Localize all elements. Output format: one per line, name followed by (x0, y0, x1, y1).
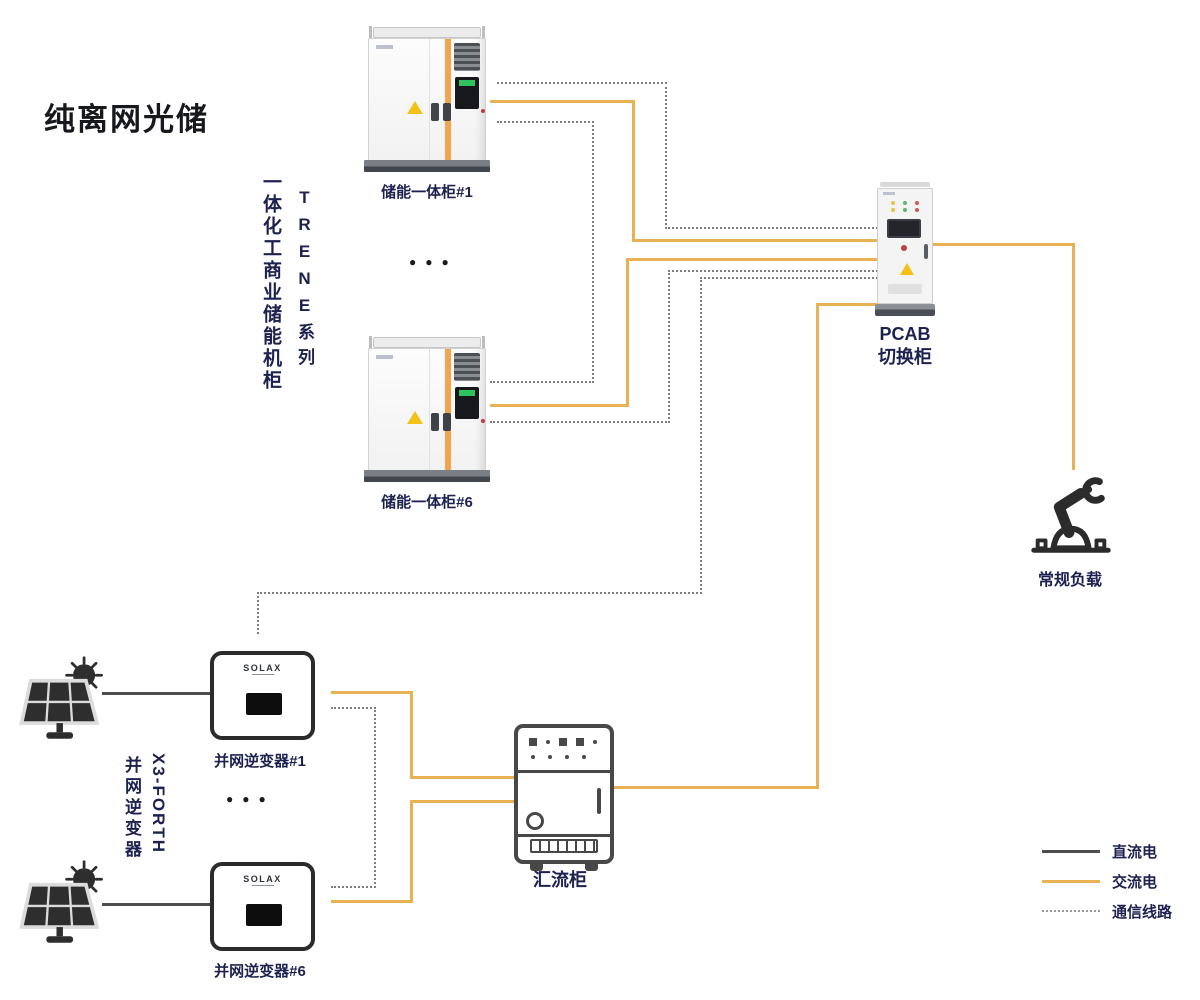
cabinet-display-led (459, 80, 475, 86)
comm-line-cab6-v (668, 270, 670, 423)
dc-line-sample (1042, 850, 1100, 853)
comm-line-cab1-to-pcab (665, 227, 878, 229)
dc-line-pv2-to-inv6 (102, 903, 212, 906)
warning-triangle-icon (900, 263, 914, 275)
ac-line-cab1-h (490, 100, 635, 103)
cabinet-door-seam (429, 349, 430, 470)
combiner-label: 汇流柜 (510, 866, 610, 892)
combiner-divider (518, 834, 610, 837)
combiner-divider (518, 770, 610, 773)
cabinet-orange-stripe (445, 349, 451, 470)
cabinet-base (364, 470, 490, 482)
ac-line-pcab-to-load-v (1072, 243, 1075, 470)
comm-line-cab1-to-cab6-h1 (497, 121, 594, 123)
grid-inverter-6-label: 并网逆变器#6 (200, 960, 320, 981)
ac-line-pcab-to-load-h (932, 243, 1075, 246)
comm-line-sample (1042, 910, 1100, 912)
comm-line-pcab-to-inv-h2 (257, 592, 702, 594)
storage-cabinet-6 (364, 334, 490, 482)
legend-row-ac: 交流电 (1042, 866, 1172, 896)
cabinet-indicator-dot (481, 109, 485, 113)
cabinet-lifting-bar (373, 27, 481, 38)
warning-triangle-icon (407, 411, 423, 424)
pcab-body (877, 188, 933, 304)
storage-cabinet-1 (364, 24, 490, 172)
legend: 直流电 交流电 通信线路 (1042, 836, 1172, 926)
ac-line-cab1-to-pcab (632, 239, 878, 242)
warning-triangle-icon (407, 101, 423, 114)
legend-row-dc: 直流电 (1042, 836, 1172, 866)
cabinet-vent-grill (454, 43, 480, 71)
pcab-vent (888, 284, 922, 294)
ac-line-combiner-v (816, 303, 819, 789)
cabinet-body (368, 38, 486, 161)
brand-logo-mark (883, 192, 895, 195)
ac-line-cab6-h (490, 404, 629, 407)
combiner-logo-badge (526, 812, 544, 830)
ac-line-inv1-to-combiner (410, 776, 516, 779)
combiner-indicator-row (531, 755, 586, 759)
diagram-title: 纯离网光储 (44, 94, 209, 139)
comm-line-cab1-to-cab6-v (592, 121, 594, 383)
legend-label-dc: 直流电 (1112, 841, 1157, 862)
ac-line-combiner-to-pcab (816, 303, 878, 306)
solar-panel-icon (16, 652, 108, 750)
cabinet-display (455, 77, 479, 109)
brand-logo-mark (376, 45, 393, 49)
pcab-label: PCAB 切换柜 (855, 323, 955, 368)
grid-inverter-6: SOLAX (210, 862, 315, 951)
grid-inverter-1-label: 并网逆变器#1 (200, 750, 320, 771)
grid-inverter-1: SOLAX (210, 651, 315, 740)
comm-line-inv1-to-inv6-v (374, 707, 376, 888)
comm-line-pcab-to-inv-v2 (257, 592, 259, 634)
comm-line-pcab-to-inv-v1 (700, 277, 702, 594)
pcab-cabinet (875, 182, 935, 316)
ac-line-inv1-v (410, 691, 413, 779)
pcab-label-line1: PCAB (855, 323, 955, 346)
comm-line-cab6-h (490, 421, 670, 423)
cabinet-body (368, 348, 486, 471)
pcab-top-bar (880, 182, 930, 187)
comm-line-cab6-to-pcab (668, 270, 878, 272)
cabinet-lifting-bar (373, 337, 481, 348)
comm-line-pcab-to-inv-h1 (700, 277, 878, 279)
storage-type-vertical-label: 一体化工商业储能机柜 (261, 172, 280, 392)
comm-line-cab1-v (665, 82, 667, 229)
inverter-brand-logo: SOLAX (214, 874, 311, 886)
inverter-type-vertical-label: 并网逆变器 (123, 756, 140, 861)
robot-arm-icon (1022, 464, 1120, 562)
inverter-screen (246, 904, 282, 926)
cabinet-display (455, 387, 479, 419)
ac-line-sample (1042, 880, 1100, 883)
inverter-model-vertical-label: X3-FORTH (150, 753, 167, 854)
cabinet-door-seam (429, 39, 430, 160)
pcab-display (887, 219, 921, 238)
cabinet-base (364, 160, 490, 172)
storage-cabinet-1-label: 储能一体柜#1 (357, 181, 497, 202)
cabinet-vent-grill (454, 353, 480, 381)
solar-panel-icon (16, 856, 108, 954)
ac-line-cab6-v (626, 258, 629, 407)
cabinet-handle (431, 103, 439, 121)
legend-label-comm: 通信线路 (1112, 901, 1172, 922)
pcab-handle (924, 244, 928, 259)
cabinet-handle (431, 413, 439, 431)
combiner-cabinet (514, 724, 614, 864)
inverter-brand-logo: SOLAX (214, 663, 311, 675)
pcab-label-line2: 切换柜 (855, 346, 955, 369)
ac-line-cab1-v (632, 100, 635, 242)
pcab-base (875, 304, 935, 316)
comm-line-cab1-h (497, 82, 667, 84)
inverter-ellipsis-dots: ●●● (226, 792, 275, 806)
pcab-emergency-button (901, 245, 907, 251)
combiner-switch-row (529, 737, 601, 746)
legend-label-ac: 交流电 (1112, 871, 1157, 892)
cabinet-indicator-dot (481, 419, 485, 423)
storage-cabinet-6-label: 储能一体柜#6 (357, 491, 497, 512)
comm-line-inv1-to-inv6-h2 (331, 886, 376, 888)
pcab-indicator-lights (887, 199, 923, 214)
legend-row-comm: 通信线路 (1042, 896, 1172, 926)
ac-line-inv6-to-combiner (410, 800, 516, 803)
comm-line-cab1-to-cab6-h2 (490, 381, 594, 383)
load-label: 常规负载 (1020, 566, 1120, 590)
storage-series-vertical-label: TRENE系列 (296, 188, 313, 373)
cabinet-display-led (459, 390, 475, 396)
cabinet-orange-stripe (445, 39, 451, 160)
brand-logo-mark (376, 355, 393, 359)
combiner-vent (530, 839, 598, 853)
ac-line-combiner-h (605, 786, 819, 789)
storage-ellipsis-dots: ●●● (409, 255, 458, 269)
ac-line-cab6-to-pcab (626, 258, 878, 261)
comm-line-inv1-to-inv6-h1 (331, 707, 376, 709)
diagram-canvas: 纯离网光储 一体化工商业储能机柜 TRENE系列 X3-FORTH 并网逆变器 (0, 0, 1200, 1000)
ac-line-inv6-v (410, 800, 413, 903)
ac-line-inv1-h (331, 691, 413, 694)
dc-line-pv1-to-inv1 (102, 692, 212, 695)
inverter-screen (246, 693, 282, 715)
ac-line-inv6-h (331, 900, 413, 903)
combiner-handle (597, 788, 601, 814)
